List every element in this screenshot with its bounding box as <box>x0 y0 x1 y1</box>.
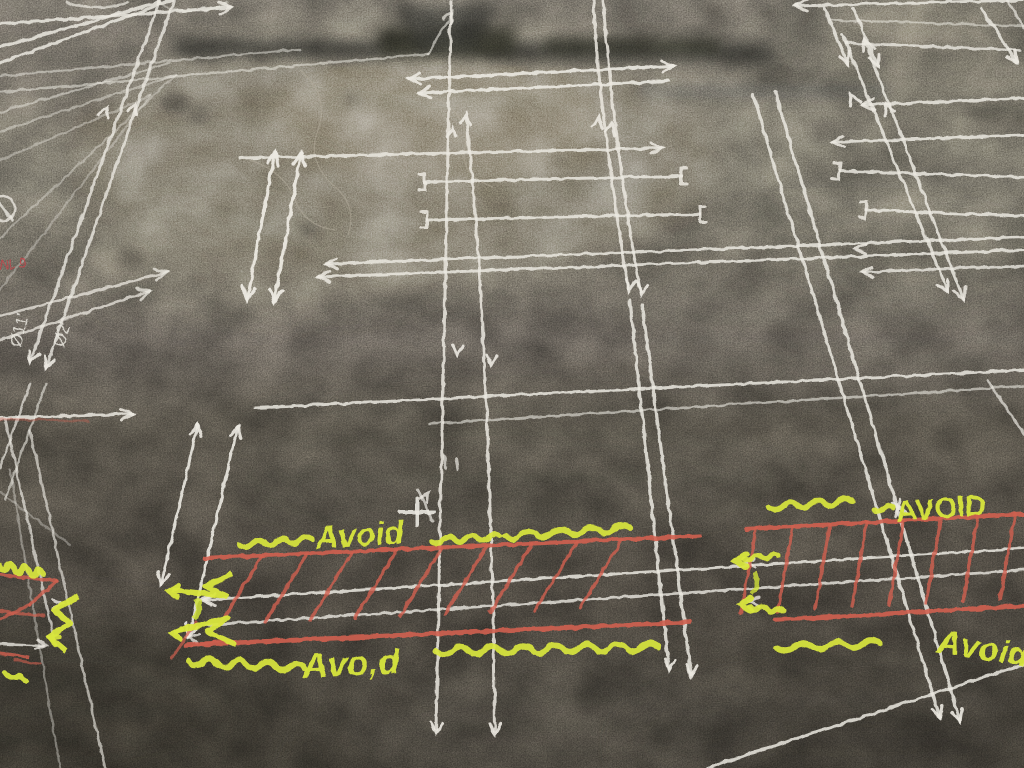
svg-text:AVOID: AVOID <box>895 490 987 528</box>
svg-text:Avo,d: Avo,d <box>300 642 401 686</box>
svg-text:Avoid: Avoid <box>313 514 407 556</box>
